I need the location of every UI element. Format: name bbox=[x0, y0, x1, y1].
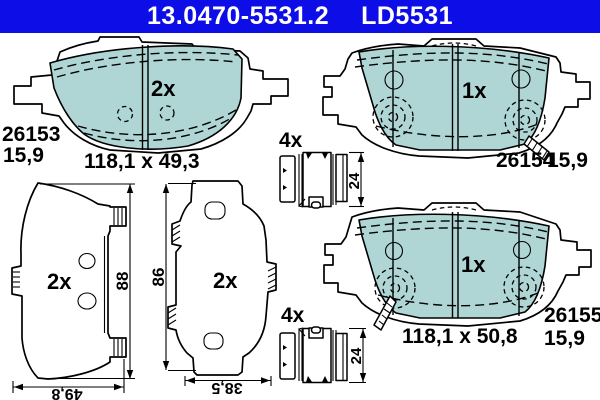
back-view-2-height-label: 86 bbox=[149, 268, 168, 287]
clip-top-quantity-label: 4x bbox=[279, 129, 303, 152]
brake-pad-datasheet: 13.0470-5531.2 LD5531 2x 26153 15,9 118,… bbox=[0, 0, 600, 400]
clip-top-height-label: 24 bbox=[346, 172, 363, 189]
header-bar: 13.0470-5531.2 LD5531 bbox=[0, 0, 600, 33]
inner-pad-dimensions-label: 118,1 x 49,3 bbox=[84, 150, 200, 173]
accessory-clip-drawing bbox=[280, 153, 347, 209]
clip-bottom-quantity-label: 4x bbox=[281, 304, 305, 327]
back-view-1-drawing: 2x 88 49,8 bbox=[12, 183, 135, 400]
friction-surface bbox=[359, 46, 549, 150]
outer-pad-right-article-label: 26155 bbox=[544, 304, 600, 327]
clip-bottom-dimension: 24 bbox=[348, 329, 366, 383]
clip-top-dimension: 24 bbox=[346, 153, 364, 207]
outer-pad-right-dimensions-label: 118,1 x 50,8 bbox=[402, 325, 518, 348]
back-view-1-height-label: 88 bbox=[113, 272, 132, 291]
back-view-1-quantity-label: 2x bbox=[47, 269, 72, 294]
accessory-clip-bottom-drawing bbox=[280, 327, 347, 383]
inner-pad-drawing: 2x 26153 15,9 118,1 x 49,3 bbox=[2, 37, 288, 173]
back-view-2-drawing: 2x 86 38,5 bbox=[149, 181, 276, 396]
technical-drawing: 2x 26153 15,9 118,1 x 49,3 bbox=[0, 0, 600, 400]
outer-pad-left-article-label: 26154 bbox=[496, 149, 555, 172]
inner-pad-quantity-label: 2x bbox=[151, 76, 176, 101]
outer-pad-right-thickness-label: 15,9 bbox=[544, 327, 585, 350]
back-view-1-width-label: 49,8 bbox=[51, 385, 82, 400]
clip-bottom-height-label: 24 bbox=[348, 347, 365, 364]
part-number: 13.0470-5531.2 bbox=[147, 4, 329, 29]
outer-pad-left-thickness-label: 15,9 bbox=[547, 149, 588, 172]
back-view-2-width-label: 38,5 bbox=[211, 379, 242, 396]
outer-pad-left-quantity-label: 1x bbox=[462, 78, 487, 103]
reference-code: LD5531 bbox=[361, 4, 453, 29]
inner-pad-thickness-label: 15,9 bbox=[3, 144, 44, 167]
width-dimension-38-5: 38,5 bbox=[185, 376, 271, 396]
outer-pad-right-quantity-label: 1x bbox=[461, 252, 486, 277]
inner-pad-article-label: 26153 bbox=[2, 123, 60, 146]
back-view-2-quantity-label: 2x bbox=[213, 268, 238, 293]
